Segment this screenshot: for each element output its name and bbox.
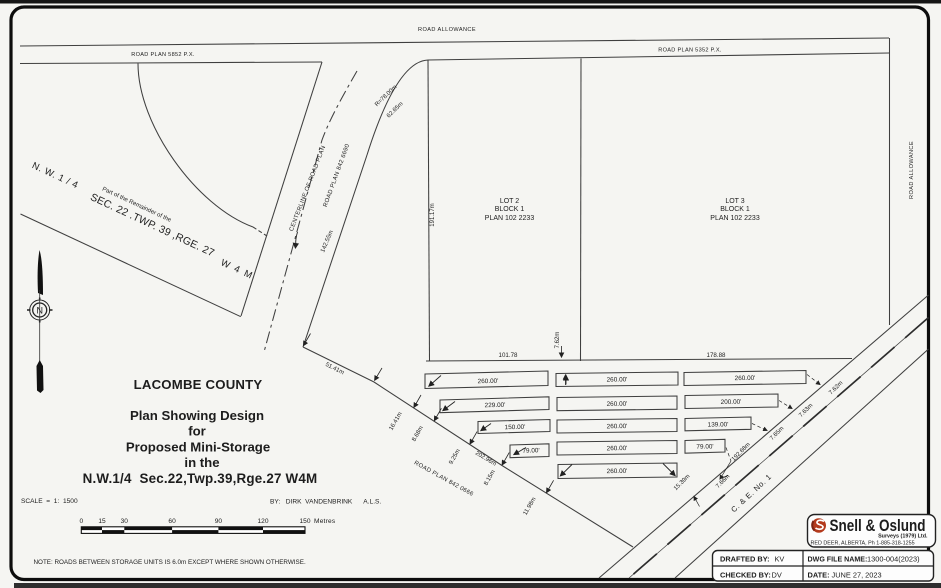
svg-text:142.55m: 142.55m — [320, 230, 335, 254]
svg-text:260.00': 260.00' — [478, 378, 499, 385]
svg-text:178.88: 178.88 — [707, 352, 726, 359]
svg-text:260.00': 260.00' — [607, 468, 628, 475]
svg-text:for: for — [188, 424, 206, 439]
svg-text:LACOMBE COUNTY: LACOMBE COUNTY — [134, 377, 263, 392]
svg-text:0: 0 — [79, 518, 83, 525]
svg-text:30: 30 — [121, 518, 129, 525]
svg-text:60: 60 — [168, 518, 176, 525]
svg-text:Surveys (1979) Ltd.: Surveys (1979) Ltd. — [878, 534, 928, 540]
svg-text:139.00': 139.00' — [708, 421, 729, 428]
svg-text:192.68m: 192.68m — [731, 442, 752, 463]
svg-text:Snell & Oslund: Snell & Oslund — [830, 516, 926, 535]
svg-text:in the: in the — [184, 455, 219, 470]
svg-text:260.00': 260.00' — [607, 423, 628, 430]
svg-text:150: 150 — [299, 518, 310, 525]
svg-text:51.41m: 51.41m — [324, 362, 345, 376]
svg-text:PLAN 102 2233: PLAN 102 2233 — [485, 215, 535, 222]
svg-text:Metres: Metres — [314, 518, 336, 525]
svg-text:229.00': 229.00' — [485, 402, 506, 409]
svg-text:C. & E. No. 1: C. & E. No. 1 — [729, 472, 773, 514]
svg-text:N.W.1/4 Sec.22,Twp.39,Rge.27: N.W.1/4 Sec.22,Twp.39,Rge.27 W4M — [83, 471, 318, 486]
svg-text:8.68m: 8.68m — [411, 425, 425, 442]
svg-text:15.39m: 15.39m — [673, 474, 691, 492]
svg-text:7.65m: 7.65m — [769, 426, 785, 442]
svg-text:Proposed Mini-Storage: Proposed Mini-Storage — [126, 440, 270, 455]
svg-text:260.00': 260.00' — [607, 401, 628, 408]
svg-text:101.78: 101.78 — [499, 352, 518, 359]
svg-text:NOTE: ROADS BETWEEN STORAGE UN: NOTE: ROADS BETWEEN STORAGE UNITS IS 6.0… — [34, 559, 306, 566]
svg-text:BLOCK 1: BLOCK 1 — [495, 206, 525, 213]
svg-text:62.65m: 62.65m — [386, 101, 405, 119]
svg-text:ROAD PLAN 5852 P.X.: ROAD PLAN 5852 P.X. — [131, 52, 195, 58]
svg-text:ROAD ALLOWANCE: ROAD ALLOWANCE — [418, 27, 476, 33]
svg-text:260.00': 260.00' — [735, 375, 756, 382]
svg-text:79.00': 79.00' — [696, 443, 713, 450]
svg-text:191.17m: 191.17m — [430, 203, 436, 226]
svg-text:DV: DV — [772, 571, 782, 580]
svg-text:DWG FILE NAME:: DWG FILE NAME: — [808, 556, 868, 564]
svg-text:SEC. 22 .TWP. 39 ,RGE. 27: SEC. 22 .TWP. 39 ,RGE. 27 — [88, 191, 216, 259]
svg-text:N. W. 1 / 4: N. W. 1 / 4 — [30, 160, 80, 191]
svg-text:W 4 M: W 4 M — [219, 257, 255, 282]
svg-text:ROAD PLAN 5352 P.X.: ROAD PLAN 5352 P.X. — [658, 48, 722, 54]
svg-text:SCALE = 1: 1500: SCALE = 1: 1500 — [21, 498, 78, 505]
svg-text:260.00': 260.00' — [607, 445, 628, 452]
svg-text:ROAD PLAN 842 0666: ROAD PLAN 842 0666 — [413, 460, 475, 498]
svg-text:202.96m: 202.96m — [474, 451, 497, 468]
svg-text:Plan Showing Design: Plan Showing Design — [130, 408, 264, 423]
svg-text:90: 90 — [215, 518, 223, 525]
svg-text:LOT 2: LOT 2 — [500, 198, 519, 205]
svg-text:120: 120 — [257, 518, 268, 525]
svg-text:ROAD PLAN 842 6690: ROAD PLAN 842 6690 — [323, 143, 352, 208]
svg-text:BY: DIRK VANDENBRINK A: BY: DIRK VANDENBRINK A.L.S. — [270, 499, 381, 506]
svg-text:260.00': 260.00' — [607, 376, 628, 383]
svg-text:8.15m: 8.15m — [483, 469, 497, 486]
svg-text:1300-004(2023): 1300-004(2023) — [867, 555, 920, 564]
svg-text:9.25m: 9.25m — [448, 448, 462, 465]
svg-text:7.62m: 7.62m — [555, 332, 561, 349]
svg-text:200.00': 200.00' — [721, 399, 742, 406]
svg-text:150.00': 150.00' — [505, 424, 526, 431]
svg-text:CENTERLINE OF ROAD PLAN: CENTERLINE OF ROAD PLAN — [289, 145, 327, 232]
svg-text:11.98m: 11.98m — [523, 497, 538, 517]
svg-text:JUNE 27, 2023: JUNE 27, 2023 — [832, 571, 882, 580]
svg-text:PLAN 102 2233: PLAN 102 2233 — [710, 215, 760, 222]
svg-text:KV: KV — [775, 555, 785, 564]
svg-text:CHECKED BY:: CHECKED BY: — [720, 571, 771, 580]
svg-text:DATE:: DATE: — [808, 571, 830, 580]
svg-text:15: 15 — [98, 518, 106, 525]
svg-text:LOT 3: LOT 3 — [725, 198, 744, 205]
svg-text:BLOCK 1: BLOCK 1 — [720, 206, 750, 213]
svg-text:ROAD ALLOWANCE: ROAD ALLOWANCE — [909, 141, 915, 199]
svg-text:DRAFTED BY:: DRAFTED BY: — [720, 555, 770, 564]
svg-text:RED DEER, ALBERTA, Ph 1-885-: RED DEER, ALBERTA, Ph 1-885-318-1255 — [811, 541, 915, 547]
svg-text:16.41m: 16.41m — [389, 411, 404, 431]
